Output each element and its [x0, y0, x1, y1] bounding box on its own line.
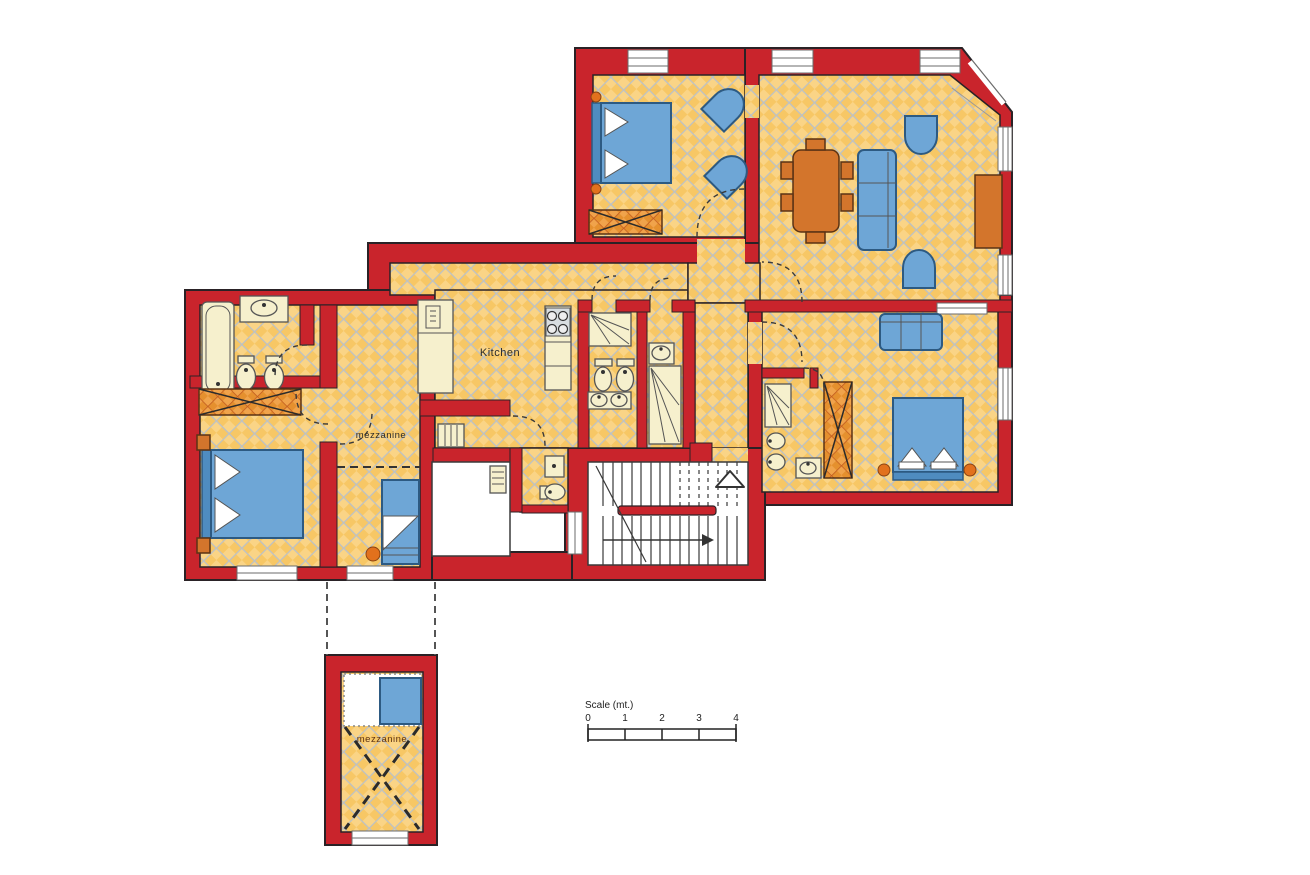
sideboard-icon — [975, 175, 1002, 248]
door-opening-bedroom1-living — [745, 85, 759, 118]
floor-plan-canvas: Kitchen mezzanine mezzanine Scale (mt.) … — [0, 0, 1310, 875]
double-bed-icon — [592, 103, 671, 183]
window-icon — [628, 50, 668, 73]
scale-bar-title: Scale (mt.) — [585, 700, 633, 711]
wardrobe-icon — [199, 389, 301, 415]
bidet-icon — [617, 359, 635, 391]
door-opening-bedroom-3 — [748, 322, 762, 364]
single-bed-icon — [382, 480, 419, 564]
nightstand-icon — [197, 435, 210, 450]
nightstand-icon — [197, 538, 210, 553]
bidet-icon — [265, 356, 284, 390]
wall-kitchen-bath — [578, 312, 589, 448]
scale-tick-label: 2 — [659, 713, 665, 724]
toilet-icon — [540, 484, 565, 500]
toilet-icon — [237, 356, 256, 390]
sink-icon — [545, 456, 564, 477]
shower-icon — [765, 384, 791, 427]
toilet-icon — [595, 359, 613, 391]
floor-hall-bedroom-3 — [695, 303, 748, 448]
stool-icon — [366, 547, 380, 561]
stove-icon — [545, 306, 571, 390]
bathroom-1-fixtures — [588, 313, 634, 409]
bathtub-icon — [202, 302, 234, 396]
scale-tick-label: 3 — [696, 713, 702, 724]
fridge-cabinet-icon — [418, 300, 453, 393]
window-icon — [998, 368, 1012, 420]
sofa-icon — [880, 314, 942, 350]
window-icon — [568, 512, 582, 554]
mezzanine-annex-label: mezzanine — [357, 734, 407, 745]
kitchen-label: Kitchen — [480, 347, 520, 359]
window-icon — [998, 127, 1012, 171]
wall-bedroom2-mezzanine — [320, 305, 337, 388]
lamp-icon — [591, 92, 601, 102]
loft-bed-icon — [380, 678, 421, 724]
scale-tick-label: 4 — [733, 713, 739, 724]
scale-tick-label: 1 — [622, 713, 628, 724]
sofa-icon — [858, 150, 896, 250]
scale-tick-label: 0 — [585, 713, 591, 724]
floor-plan-drawing: Kitchen mezzanine mezzanine Scale (mt.) … — [0, 0, 1310, 875]
stair-rail — [618, 506, 716, 515]
armchair-icon — [905, 116, 937, 154]
window-icon — [937, 303, 987, 314]
bidet-icon — [767, 454, 785, 470]
window-icon — [347, 566, 393, 580]
bedroom-2-furniture — [197, 389, 303, 553]
sink-icon — [240, 296, 288, 322]
window-icon — [998, 255, 1012, 295]
lamp-icon — [591, 184, 601, 194]
floor-hall-living — [688, 263, 760, 303]
lamp-icon — [964, 464, 976, 476]
double-bed-icon — [893, 398, 963, 480]
window-icon — [237, 566, 297, 580]
toilet-icon — [767, 433, 785, 449]
mezzanine-room-label: mezzanine — [356, 430, 406, 441]
lamp-icon — [878, 464, 890, 476]
wardrobe-icon — [824, 382, 852, 478]
dresser-icon — [589, 210, 662, 234]
window-icon — [920, 50, 960, 73]
double-bed-icon — [202, 450, 303, 538]
double-sink-icon — [588, 392, 631, 409]
radiator-icon — [438, 424, 464, 447]
shower-icon — [649, 366, 681, 444]
radiator-icon — [490, 466, 506, 493]
shower-icon — [589, 313, 631, 346]
sink-icon — [649, 343, 674, 364]
armchair-icon — [903, 250, 935, 288]
door-opening-bedroom-1 — [697, 239, 745, 265]
window-icon — [352, 831, 408, 845]
scale-bar: Scale (mt.) 0 1 2 3 4 — [585, 700, 739, 742]
sink-icon — [796, 458, 821, 478]
window-icon — [772, 50, 813, 73]
